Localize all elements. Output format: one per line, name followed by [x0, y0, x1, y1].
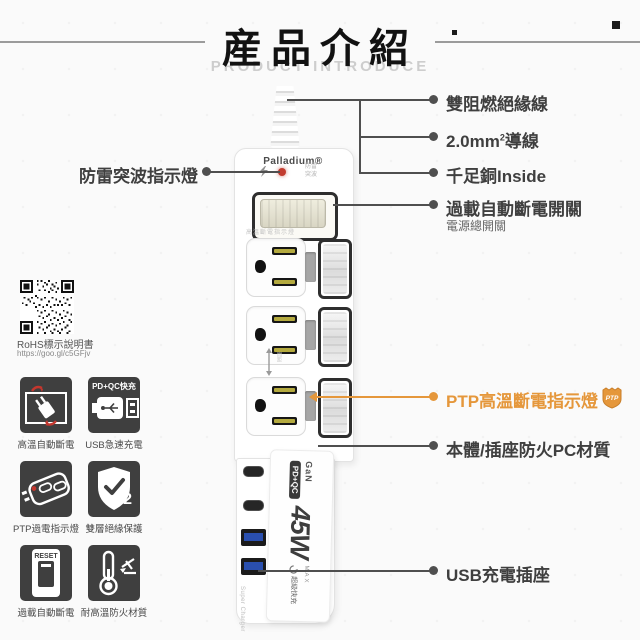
- reset-text: RESET: [20, 553, 72, 560]
- wattage-label: 45W: [284, 505, 316, 558]
- brand-label: Palladium®: [234, 156, 352, 167]
- outlet-slot: [272, 315, 297, 323]
- spec-sticker: GaN PD+QC 45W MAX 超級快充: [266, 449, 334, 623]
- outlet-side-button: [305, 320, 316, 350]
- callout-line: [210, 171, 280, 173]
- outlet-1: [246, 238, 306, 297]
- feature-tile-overload-switch: RESET OFF: [20, 545, 72, 601]
- callout-ptp: PTP高溫斷電指示燈 PTP: [446, 387, 622, 412]
- outlet-switch-3: [318, 378, 352, 438]
- outlet-3: [246, 377, 306, 436]
- callout-line: [258, 570, 434, 572]
- svg-text:PTP: PTP: [606, 395, 619, 402]
- feature-tile-double-insulation: 2: [88, 461, 140, 517]
- outlet-switch-2: [318, 307, 352, 367]
- off-text: OFF: [20, 587, 72, 594]
- outlet-slot: [272, 386, 297, 394]
- feature-label: 雙層絕緣保護: [76, 521, 152, 535]
- qr-code: [20, 280, 74, 334]
- pdqc-badge: PD+QC: [289, 461, 301, 499]
- outlet-note: 高溫斷電指示燈: [246, 227, 338, 236]
- callout-bullet: [429, 95, 438, 104]
- double-insulation-shield-icon: [88, 461, 140, 517]
- surge-led-note-top: 防雷: [305, 163, 317, 171]
- usb-c-port-2: [243, 500, 264, 511]
- feature-tile-overheat-cutoff: [20, 377, 72, 433]
- max-label: MAX: [303, 565, 309, 584]
- callout-bullet: [429, 168, 438, 177]
- overheat-cutoff-icon: [20, 377, 72, 433]
- gan-label: GaN: [303, 461, 314, 483]
- callout-line: [359, 172, 434, 174]
- feature-label: 高溫自動斷電: [8, 437, 84, 451]
- feature-label: 過載自動斷電: [8, 605, 84, 619]
- callout-bullet: [429, 132, 438, 141]
- feature-label: 耐高溫防火材質: [76, 605, 152, 619]
- callout-bullet: [429, 200, 438, 209]
- outlet-slot: [272, 278, 297, 286]
- wire-gauge-unit: 導線: [505, 132, 539, 151]
- outlet-slot: [272, 417, 297, 425]
- callout-copper: 千足銅Inside: [446, 162, 546, 187]
- shield-two-text: 2: [123, 491, 132, 509]
- callout-surge-led: 防雷突波指示燈: [40, 162, 198, 187]
- callout-arrow-tip: [309, 392, 317, 402]
- usb-a-port-1: [241, 529, 266, 546]
- usb-a-port-2: [241, 558, 266, 575]
- ground-hole: [255, 328, 266, 341]
- callout-wire-gauge: 2.0mm2導線: [446, 127, 539, 152]
- fast-charge-text: 超級快充: [288, 576, 299, 604]
- callout-insulated-wire: 雙阻燃絕緣線: [446, 90, 548, 115]
- callout-line: [359, 136, 434, 138]
- qr-url: https://goo.gl/c5GFjv: [17, 349, 90, 358]
- callout-pc-material: 本體/插座防火PC材質: [446, 436, 610, 461]
- main-power-rocker: [260, 199, 326, 228]
- super-charger-note: Super Charger: [239, 586, 245, 632]
- usb-c-port-1: [243, 466, 264, 477]
- callout-bullet: [202, 167, 211, 176]
- callout-line-orange: [314, 396, 434, 398]
- spacing-arrow-icon: [264, 348, 274, 376]
- callout-bullet: [429, 441, 438, 450]
- outlet-side-button: [305, 252, 316, 282]
- callout-line: [318, 445, 434, 447]
- callout-main-switch-sub: 電源總開關: [446, 217, 506, 234]
- callout-usb-socket: USB充電插座: [446, 561, 550, 586]
- callout-bullet-orange: [429, 392, 438, 401]
- heat-resistant-icon: [88, 545, 140, 601]
- wire-gauge-value: 2.0mm: [446, 132, 500, 151]
- ground-hole: [255, 399, 266, 412]
- surge-led-note-bottom: 突波: [305, 171, 317, 179]
- usb-fast-charge-icon: [88, 377, 140, 433]
- outlet-switch-1: [318, 239, 352, 299]
- feature-label: USB急速充電: [76, 437, 152, 451]
- ptp-shield-badge-icon: PTP: [602, 387, 622, 409]
- callout-ptp-text: PTP高溫斷電指示燈: [446, 387, 598, 412]
- outlet-slot: [272, 247, 297, 255]
- feature-tile-ptp-indicator: [20, 461, 72, 517]
- feature-label: PTP過電指示燈: [8, 521, 84, 535]
- surge-led-note: 防雷 突波: [305, 163, 317, 179]
- spacing-note: 間距: [276, 352, 283, 362]
- page-title: 産品介紹: [0, 16, 640, 74]
- callout-line: [333, 204, 434, 206]
- feature-tile-heat-resistant: [88, 545, 140, 601]
- ground-hole: [255, 260, 266, 273]
- callout-bullet: [429, 566, 438, 575]
- ptp-indicator-icon: [20, 461, 72, 517]
- feature-tile-usb-fast-charge: PD+QC快充: [88, 377, 140, 433]
